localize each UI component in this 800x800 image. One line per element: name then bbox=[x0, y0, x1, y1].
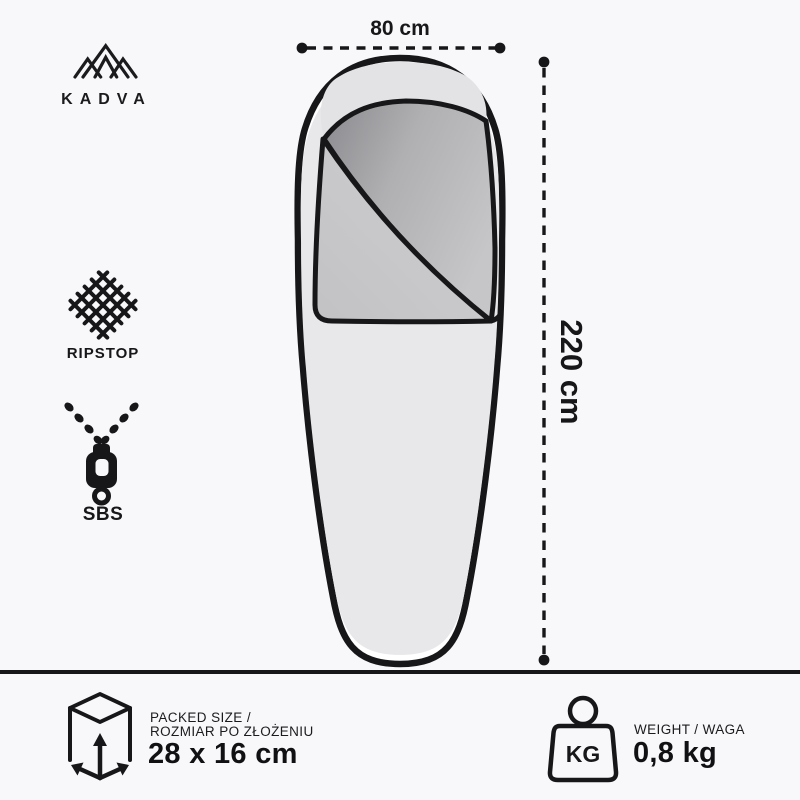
divider-line bbox=[0, 670, 800, 674]
mountain-logo-icon bbox=[67, 43, 141, 81]
packed-size-value: 28 x 16 cm bbox=[148, 738, 298, 771]
infographic-canvas: KADVA 80 cm 220 cm bbox=[0, 0, 800, 800]
packed-box-icon bbox=[60, 688, 140, 785]
packed-size-label: PACKED SIZE / ROZMIAR PO ZŁOŻENIU bbox=[150, 711, 314, 738]
ripstop-weave-icon bbox=[68, 270, 138, 340]
sleeping-bag-illustration bbox=[270, 40, 530, 680]
ripstop-label: RIPSTOP bbox=[43, 345, 163, 362]
brand-name: KADVA bbox=[33, 91, 173, 109]
kg-badge-text: KG bbox=[566, 741, 601, 767]
brand-logo: KADVA bbox=[0, 0, 210, 130]
weight-value: 0,8 kg bbox=[633, 737, 717, 770]
packed-size-label-line1: PACKED SIZE / bbox=[150, 711, 314, 725]
weight-label: WEIGHT / WAGA bbox=[634, 723, 745, 737]
sbs-label: SBS bbox=[43, 504, 163, 526]
length-dimension-label: 220 cm bbox=[546, 292, 596, 452]
weight-kg-icon: KG bbox=[545, 688, 625, 785]
width-dimension-label: 80 cm bbox=[330, 17, 470, 41]
packed-size-label-line2: ROZMIAR PO ZŁOŻENIU bbox=[150, 725, 314, 739]
zipper-icon bbox=[60, 394, 146, 506]
